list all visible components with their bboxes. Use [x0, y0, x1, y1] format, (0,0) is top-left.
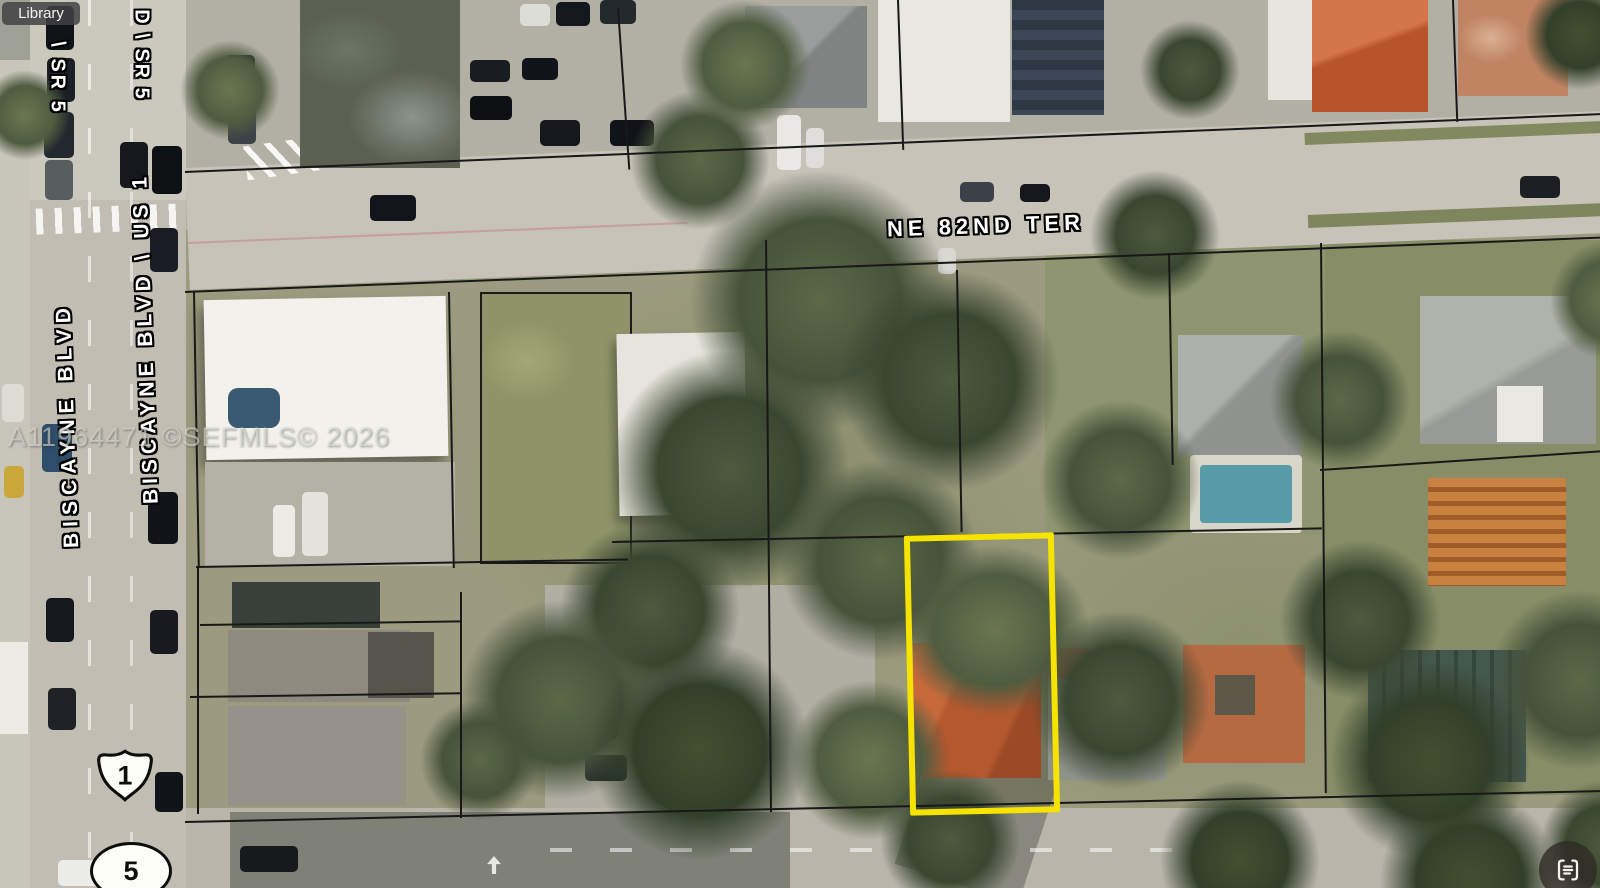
library-badge[interactable]: Library: [2, 2, 80, 25]
parking-lot: [205, 462, 455, 566]
property-highlight-outline: [904, 532, 1060, 815]
street-label-sr5-left: \ SR 5: [46, 41, 69, 115]
building-roof: [0, 642, 28, 734]
utility-marking: [188, 222, 688, 244]
watermark: A11964471 ©SEFMLS© 2026: [8, 422, 390, 453]
lane-dashes: [550, 848, 1200, 852]
apartment-roof: [228, 706, 406, 806]
street-label-sr5-right: D \ SR 5: [130, 9, 153, 101]
parcel-line: [197, 566, 199, 814]
dark-roof: [368, 632, 434, 698]
grass-verge: [1308, 203, 1600, 228]
tile-roof-house: [1312, 0, 1428, 112]
aerial-map-view: NE 82ND TER BISCAYNE BLVD \ SR 5 BISCAYN…: [0, 0, 1600, 888]
us-shield-icon: 1: [92, 748, 158, 804]
courtyard: [1215, 675, 1255, 715]
lumber-stacks: [1428, 478, 1566, 586]
svg-text:1: 1: [118, 760, 133, 790]
building-roof-white: [1497, 386, 1543, 442]
us-route-1-shield: 1: [92, 748, 158, 804]
library-badge-label: Library: [18, 5, 64, 22]
vacant-lot: [480, 292, 632, 564]
solar-panel-roof: [1012, 0, 1104, 115]
parcel-line: [460, 592, 462, 818]
scan-text-icon: [1553, 855, 1583, 885]
building-roof-white: [1268, 0, 1314, 100]
swimming-pool: [1200, 465, 1292, 523]
sr5-number: 5: [123, 856, 138, 887]
building-roof: [300, 0, 460, 168]
